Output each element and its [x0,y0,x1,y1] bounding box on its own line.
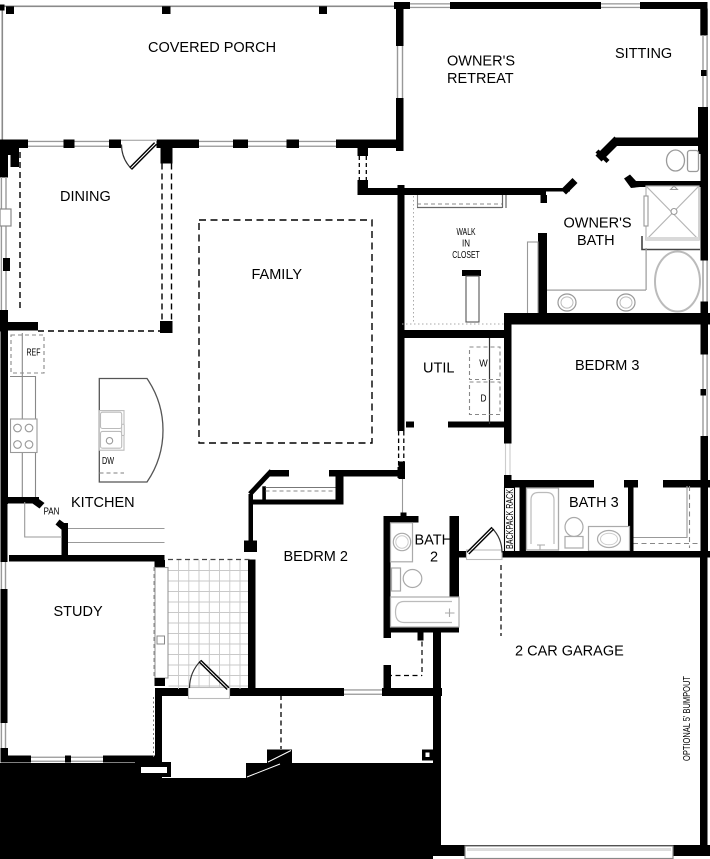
svg-text:BATH 3: BATH 3 [569,495,619,511]
svg-text:FAMILY: FAMILY [252,267,303,283]
svg-text:BEDRM 2: BEDRM 2 [284,549,348,565]
svg-text:UTIL: UTIL [423,361,454,377]
svg-text:PAN: PAN [44,507,60,518]
svg-text:2 CAR GARAGE: 2 CAR GARAGE [515,644,624,660]
svg-text:W: W [479,359,488,370]
svg-text:BACKPACK RACK: BACKPACK RACK [505,489,516,549]
svg-text:DINING: DINING [60,189,111,205]
svg-text:STUDY: STUDY [54,604,103,620]
svg-text:BATH: BATH [577,233,615,249]
svg-text:KITCHEN: KITCHEN [71,495,135,511]
svg-text:CLOSET: CLOSET [452,250,480,261]
svg-text:DW: DW [102,456,114,467]
svg-text:BATH: BATH [415,533,453,549]
svg-text:BEDRM 3: BEDRM 3 [575,358,639,374]
svg-text:RETREAT: RETREAT [447,71,514,87]
svg-text:D: D [481,394,487,405]
svg-text:COVERED PORCH: COVERED PORCH [148,40,276,56]
svg-text:OPTIONAL 5' BUMPOUT: OPTIONAL 5' BUMPOUT [682,676,693,761]
svg-text:OWNER'S: OWNER'S [447,54,515,70]
svg-text:2: 2 [430,550,438,566]
svg-text:SITTING: SITTING [615,46,672,62]
svg-text:IN: IN [462,239,470,250]
svg-text:OWNER'S: OWNER'S [564,216,632,232]
svg-text:REF: REF [27,348,41,359]
svg-text:WALK: WALK [457,227,476,238]
